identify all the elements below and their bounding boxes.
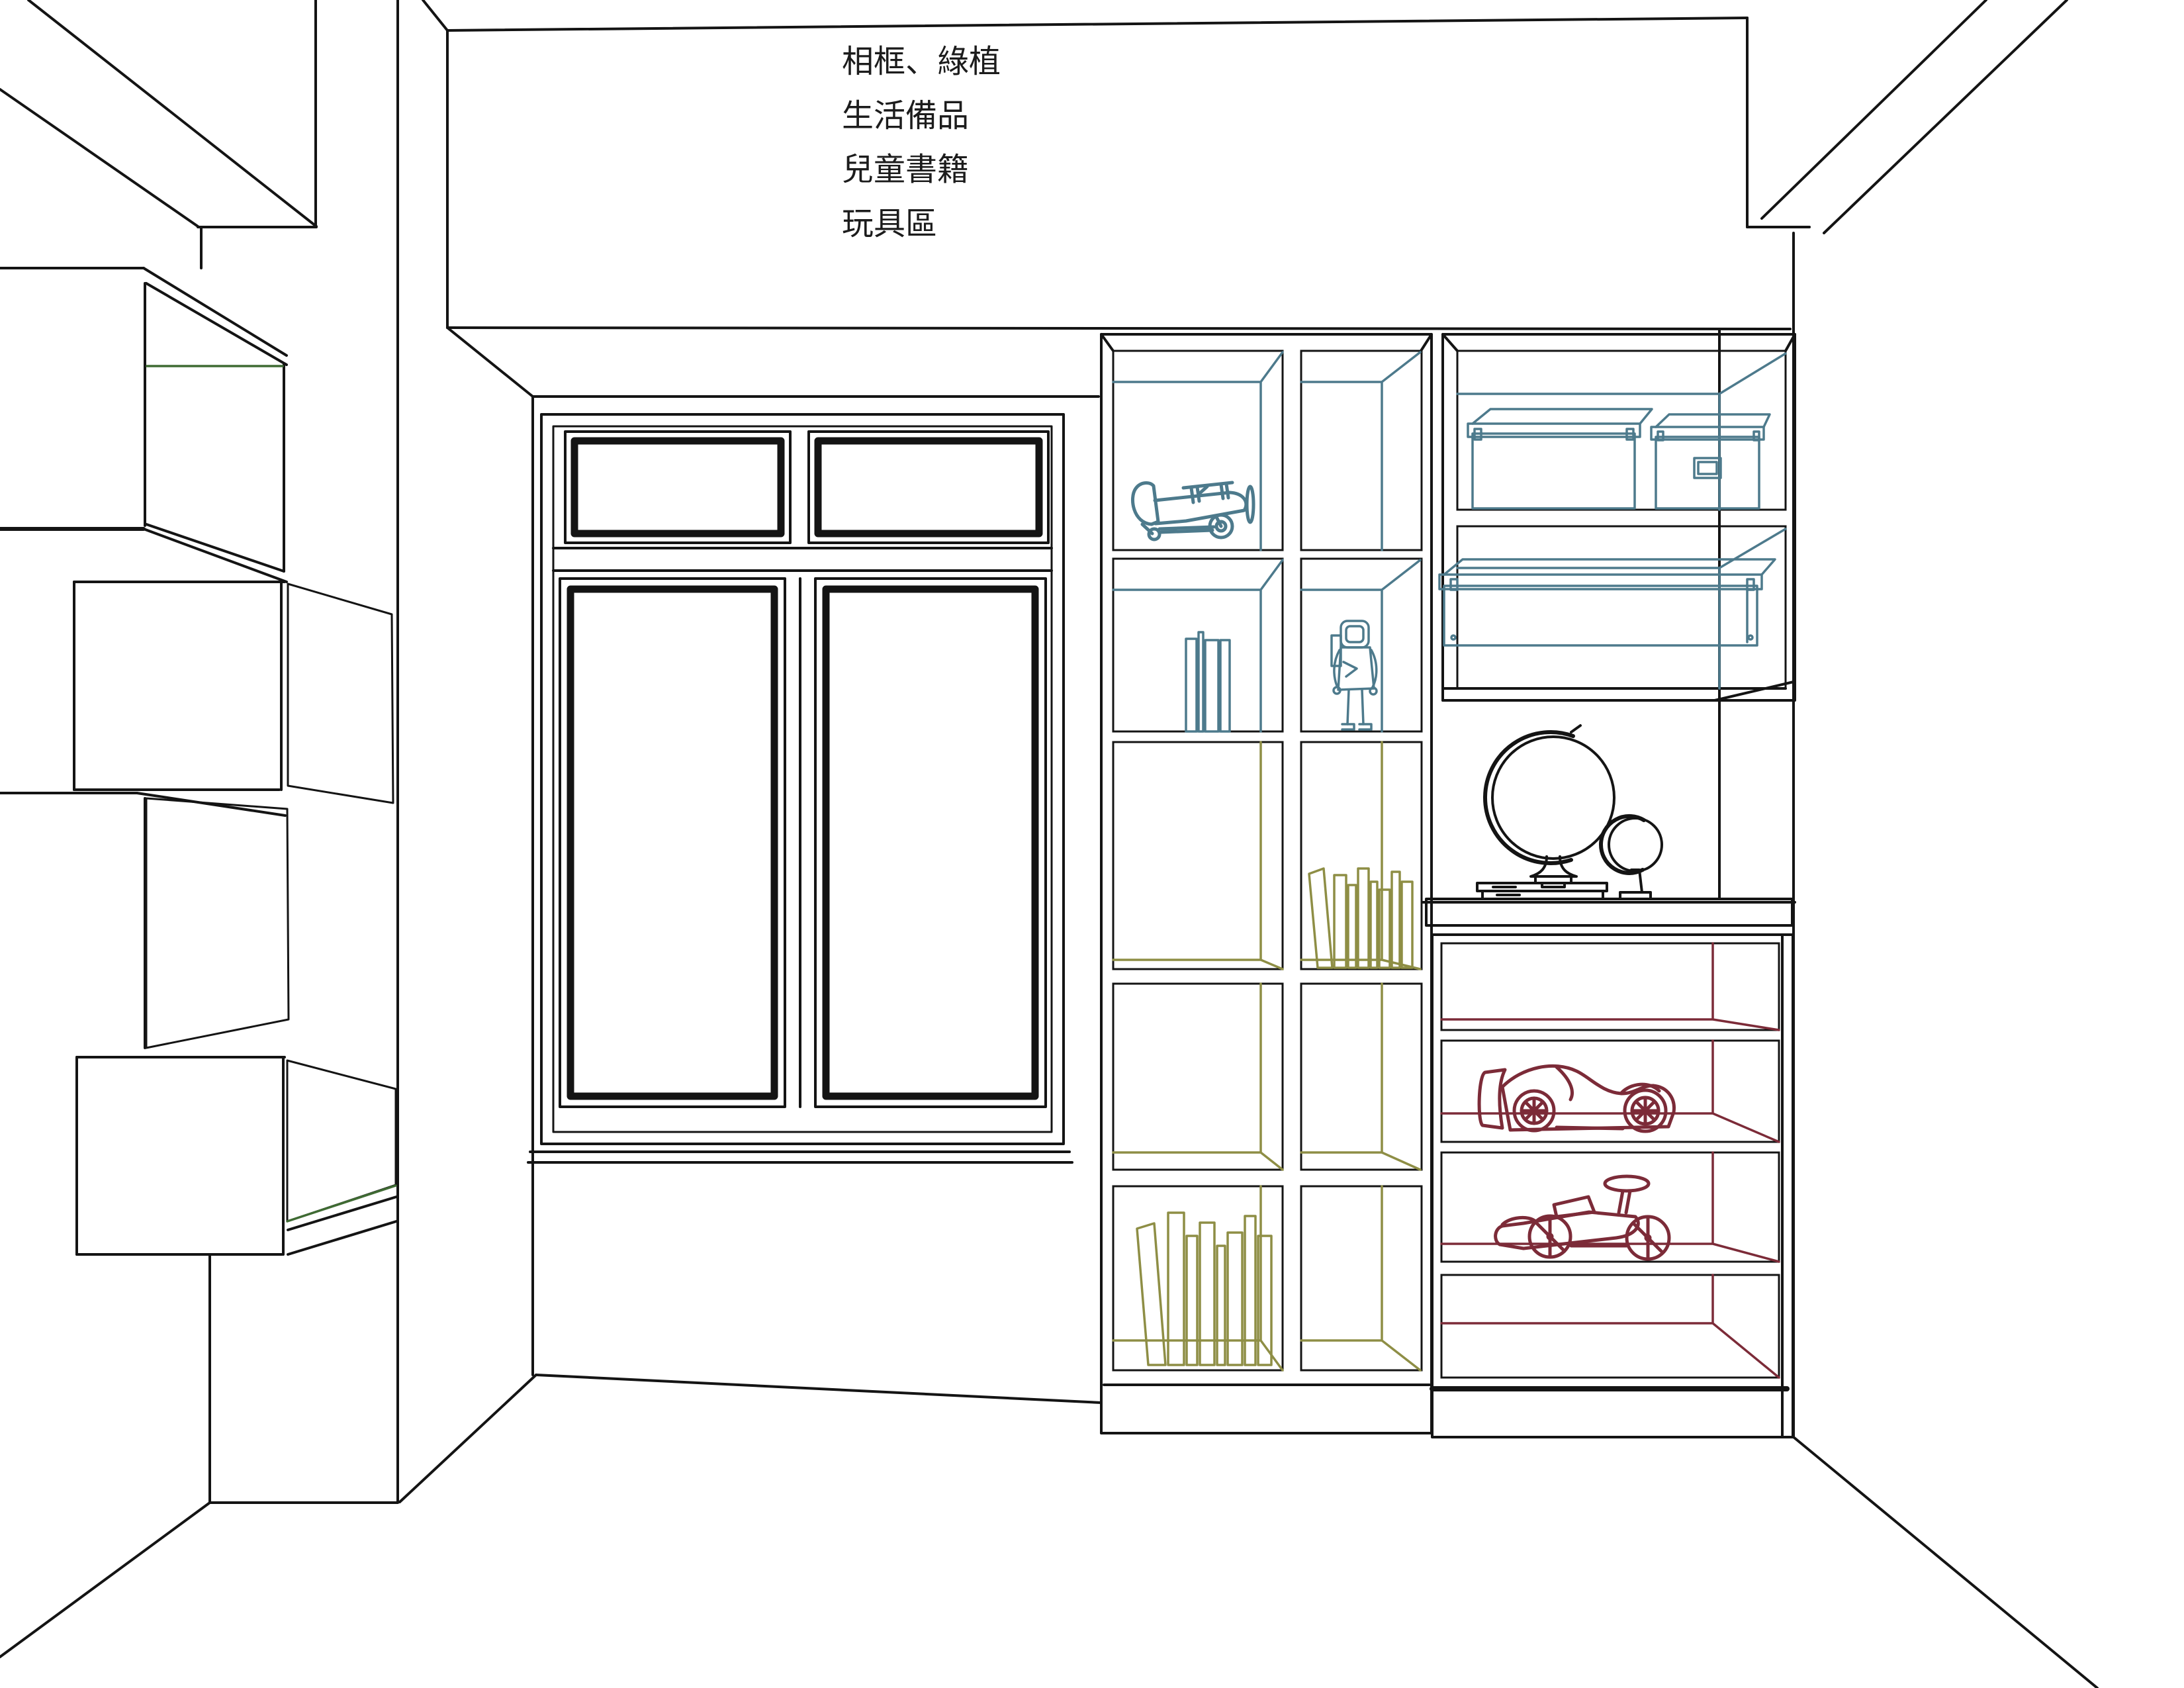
bookcase: [1101, 334, 1432, 1433]
window-transom-left: [565, 432, 790, 543]
green-display-zone: [288, 584, 393, 803]
toy-race-car-icon: [1479, 1066, 1674, 1131]
wall-cabinet: [1439, 334, 1795, 700]
toy-airplane-icon: [1132, 483, 1253, 539]
window-casement-right: [815, 579, 1046, 1107]
cube-shelf-3: [0, 793, 289, 1048]
window: [528, 414, 1072, 1162]
room-elevation-diagram: 相框、綠植 生活備品 兒童書籍 玩具區: [0, 0, 2184, 1688]
legend-label: 相框、綠植: [842, 44, 1001, 79]
book-row-blue-icon: [1115, 609, 1230, 731]
green-display-zone: [146, 286, 284, 571]
toy-shelf-frame: [1432, 935, 1793, 1437]
globe-large-icon: [1485, 726, 1614, 887]
bookcase-column-a: [1113, 351, 1283, 1370]
cube-shelf-1: [0, 268, 287, 582]
legend-swatch-yellow: [774, 146, 829, 191]
compartment-perspective-lines: [1441, 943, 1779, 1378]
legend-swatch-green: [774, 38, 829, 83]
legend-item-frames-plants: 相框、綠植: [774, 38, 1001, 83]
toy-shelf: [1432, 935, 1793, 1437]
yellow-compartment: [1301, 984, 1422, 1170]
storage-box-icon: [1439, 559, 1775, 645]
floor-line-center: [536, 1375, 1101, 1403]
counter: [1423, 899, 1795, 935]
window-transom-right: [809, 432, 1048, 543]
compartment-perspective-lines: [1301, 742, 1420, 1370]
soffit-top-left-slant: [423, 0, 447, 30]
blue-compartment: [1457, 526, 1786, 688]
shelf-inner-edge: [287, 1186, 396, 1221]
floor-edge-far-left: [0, 1503, 210, 1657]
legend-swatch-blue: [774, 93, 829, 137]
soffit-bottom-edge: [447, 328, 1790, 329]
floor-edge-right: [1794, 1437, 2097, 1688]
pink-compartment: [1441, 943, 1779, 1030]
storage-box-icon: [1651, 414, 1770, 508]
storage-box-icon: [1468, 409, 1652, 508]
soffit-top-edge: [447, 18, 1747, 30]
legend: 相框、綠植 生活備品 兒童書籍 玩具區: [774, 38, 1001, 245]
legend-swatch-pink: [774, 201, 829, 245]
floor-corner-slant-left: [400, 1375, 536, 1502]
book-row-yellow-icon: [1137, 1213, 1271, 1365]
bookcase-column-b: [1301, 351, 1422, 1370]
legend-item-toy-area: 玩具區: [774, 201, 937, 245]
left-wall-cube-shelves: [0, 268, 396, 1254]
legend-label: 玩具區: [842, 207, 937, 242]
astronaut-figure-icon: [1332, 621, 1377, 729]
pink-compartment: [1441, 1275, 1779, 1378]
green-display-zone: [146, 798, 289, 1048]
yellow-compartment: [1301, 742, 1422, 969]
compartment-perspective-lines: [1457, 353, 1786, 688]
legend-label: 生活備品: [842, 99, 969, 134]
cube-shelf-4: [77, 1057, 396, 1254]
blue-compartment: [1301, 351, 1422, 550]
book-row-yellow-icon: [1309, 868, 1412, 968]
window-casement-left: [560, 579, 785, 1107]
yellow-compartment: [1113, 742, 1283, 969]
ceiling-edge-left-upper: [28, 0, 316, 226]
cube-shelf-2: [74, 582, 393, 803]
window-outer-frame: [541, 414, 1064, 1144]
blue-compartment: [1457, 351, 1786, 510]
blue-compartment: [1301, 559, 1422, 731]
legend-item-daily-supplies: 生活備品: [774, 93, 969, 137]
compartment-perspective-lines: [1301, 352, 1420, 731]
legend-label: 兒童書籍: [842, 152, 969, 187]
ceiling-edge-right-lower: [1824, 0, 2067, 233]
yellow-compartment: [1301, 1186, 1422, 1370]
soffit-to-wall-slant: [447, 328, 533, 397]
ride-on-car-icon: [1496, 1176, 1669, 1259]
globe-small-icon: [1601, 816, 1662, 899]
yellow-compartment: [1113, 984, 1283, 1170]
legend-item-children-books: 兒童書籍: [774, 146, 969, 191]
